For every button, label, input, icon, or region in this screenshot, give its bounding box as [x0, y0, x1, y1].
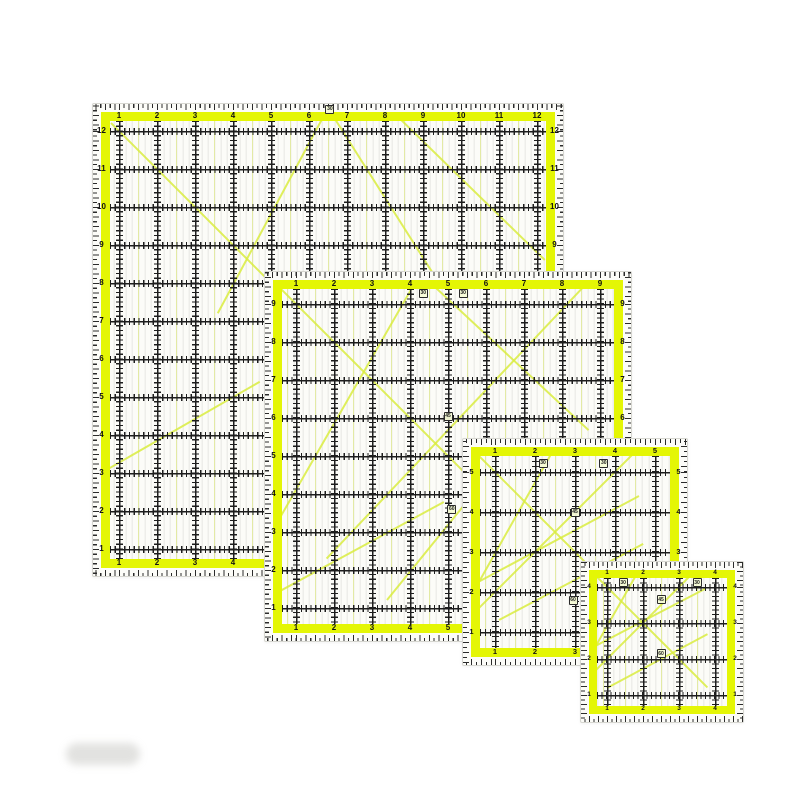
inch-label-bottom: 3: [186, 559, 204, 567]
grid-line-horizontal: [480, 549, 670, 556]
inch-label-top: 2: [526, 447, 544, 455]
inch-label-left: 10: [93, 203, 110, 211]
inch-label-left: 3: [463, 548, 480, 556]
inch-label-right: 1: [727, 692, 743, 699]
inch-label-top: 12: [528, 112, 546, 120]
inch-label-left: 5: [265, 452, 282, 460]
angle-marker: 30: [619, 578, 628, 587]
inch-label-top: 2: [148, 112, 166, 120]
inch-label-right: 9: [614, 300, 631, 308]
angle-marker: 60: [447, 505, 456, 514]
grid-line-vertical: [640, 578, 647, 706]
grid-line-horizontal: [597, 584, 727, 591]
quilting-ruler-4in: 112233444433221130304560: [580, 561, 744, 723]
inch-label-top: 1: [598, 570, 616, 577]
inch-label-left: 1: [581, 692, 597, 699]
inch-label-top: 1: [486, 447, 504, 455]
inch-label-top: 8: [376, 112, 394, 120]
inch-label-right: 6: [614, 414, 631, 422]
inch-label-left: 4: [265, 490, 282, 498]
inch-label-top: 4: [606, 447, 624, 455]
inch-label-left: 9: [93, 241, 110, 249]
inch-label-left: 7: [265, 376, 282, 384]
product-photo-quilting-ruler-set: 1122334455667788991010111112121212111110…: [0, 0, 800, 800]
inch-label-bottom: 2: [325, 624, 343, 632]
grid-line-horizontal: [110, 242, 546, 249]
angle-marker: 45: [571, 508, 580, 517]
inch-label-left: 1: [265, 604, 282, 612]
grid-line-horizontal: [480, 469, 670, 476]
grid-line-vertical: [676, 578, 683, 706]
grid-line-horizontal: [110, 128, 546, 135]
inch-label-right: 9: [546, 241, 563, 249]
inch-label-left: 11: [93, 165, 110, 173]
inch-label-bottom: 4: [224, 559, 242, 567]
inch-label-bottom: 1: [287, 624, 305, 632]
inch-label-top: 1: [110, 112, 128, 120]
inch-label-left: 3: [581, 620, 597, 627]
inch-label-right: 8: [614, 338, 631, 346]
inch-label-top: 8: [553, 280, 571, 288]
inch-label-top: 5: [262, 112, 280, 120]
inch-label-right: 3: [670, 548, 687, 556]
angle-marker: 30: [693, 578, 702, 587]
inch-label-top: 5: [646, 447, 664, 455]
inch-label-bottom: 3: [670, 706, 688, 713]
inch-label-right: 3: [727, 620, 743, 627]
inch-label-left: 2: [265, 566, 282, 574]
inch-label-left: 7: [93, 317, 110, 325]
inch-label-bottom: 1: [486, 648, 504, 656]
grid-line-horizontal: [597, 692, 727, 699]
inch-label-bottom: 4: [401, 624, 419, 632]
inch-label-bottom: 1: [598, 706, 616, 713]
angle-marker: 45: [657, 595, 666, 604]
grid-line-vertical: [116, 121, 123, 559]
inch-label-right: 12: [546, 127, 563, 135]
inch-label-left: 4: [463, 508, 480, 516]
inch-label-left: 2: [581, 656, 597, 663]
inch-label-top: 3: [670, 570, 688, 577]
inch-label-top: 4: [706, 570, 724, 577]
inch-label-left: 4: [581, 584, 597, 591]
inch-label-top: 4: [401, 280, 419, 288]
angle-marker: 60: [657, 649, 666, 658]
inch-label-bottom: 1: [110, 559, 128, 567]
angle-marker: 30: [599, 459, 608, 468]
grid-line-vertical: [712, 578, 719, 706]
angle-marker: 30: [419, 289, 428, 298]
inch-label-top: 7: [338, 112, 356, 120]
inch-label-right: 10: [546, 203, 563, 211]
grid-line-horizontal: [110, 166, 546, 173]
inch-label-right: 4: [670, 508, 687, 516]
angle-marker: 45: [444, 412, 453, 421]
watermark-smudge: [66, 743, 140, 765]
inch-label-left: 8: [265, 338, 282, 346]
inch-label-left: 8: [93, 279, 110, 287]
inch-label-bottom: 3: [363, 624, 381, 632]
inch-label-bottom: 4: [706, 706, 724, 713]
angle-marker: 30: [459, 289, 468, 298]
angle-marker: 30: [325, 105, 334, 114]
inch-label-top: 4: [224, 112, 242, 120]
tick-scale-bottom: [581, 714, 743, 722]
diagonal-guide-line: [392, 121, 545, 261]
angle-marker: 60: [569, 596, 578, 605]
inch-label-right: 2: [727, 656, 743, 663]
inch-label-top: 7: [515, 280, 533, 288]
inch-label-left: 4: [93, 431, 110, 439]
grid-line-vertical: [604, 578, 611, 706]
inch-label-top: 10: [452, 112, 470, 120]
inch-label-top: 5: [439, 280, 457, 288]
inch-label-bottom: 2: [634, 706, 652, 713]
inch-label-left: 6: [93, 355, 110, 363]
inch-label-top: 3: [363, 280, 381, 288]
inch-label-top: 6: [300, 112, 318, 120]
inch-label-left: 9: [265, 300, 282, 308]
diagonal-guide-line: [282, 501, 445, 598]
inch-label-left: 5: [93, 393, 110, 401]
angle-marker: 30: [539, 459, 548, 468]
inch-label-top: 3: [566, 447, 584, 455]
inch-label-top: 9: [414, 112, 432, 120]
inch-label-left: 3: [265, 528, 282, 536]
inch-label-left: 5: [463, 468, 480, 476]
inch-label-left: 12: [93, 127, 110, 135]
inch-label-left: 2: [463, 588, 480, 596]
grid-line-vertical: [192, 121, 199, 559]
inch-label-right: 4: [727, 584, 743, 591]
grid-line-horizontal: [282, 301, 614, 308]
inch-label-top: 2: [634, 570, 652, 577]
inch-label-left: 3: [93, 469, 110, 477]
inch-label-left: 1: [93, 545, 110, 553]
grid-line-horizontal: [597, 620, 727, 627]
inch-label-right: 5: [670, 468, 687, 476]
inch-label-top: 9: [591, 280, 609, 288]
inch-label-top: 2: [325, 280, 343, 288]
inch-label-right: 7: [614, 376, 631, 384]
grid-line-vertical: [154, 121, 161, 559]
grid-line-horizontal: [282, 377, 614, 384]
inch-label-left: 1: [463, 628, 480, 636]
inch-label-left: 2: [93, 507, 110, 515]
inch-label-right: 11: [546, 165, 563, 173]
grid-line-horizontal: [110, 204, 546, 211]
inch-label-left: 6: [265, 414, 282, 422]
inch-label-top: 1: [287, 280, 305, 288]
inch-label-top: 3: [186, 112, 204, 120]
inch-label-bottom: 5: [439, 624, 457, 632]
grid-line-horizontal: [282, 339, 614, 346]
inch-label-top: 6: [477, 280, 495, 288]
inch-label-top: 11: [490, 112, 508, 120]
inch-label-bottom: 2: [148, 559, 166, 567]
inch-label-bottom: 2: [526, 648, 544, 656]
grid-line-vertical: [230, 121, 237, 559]
